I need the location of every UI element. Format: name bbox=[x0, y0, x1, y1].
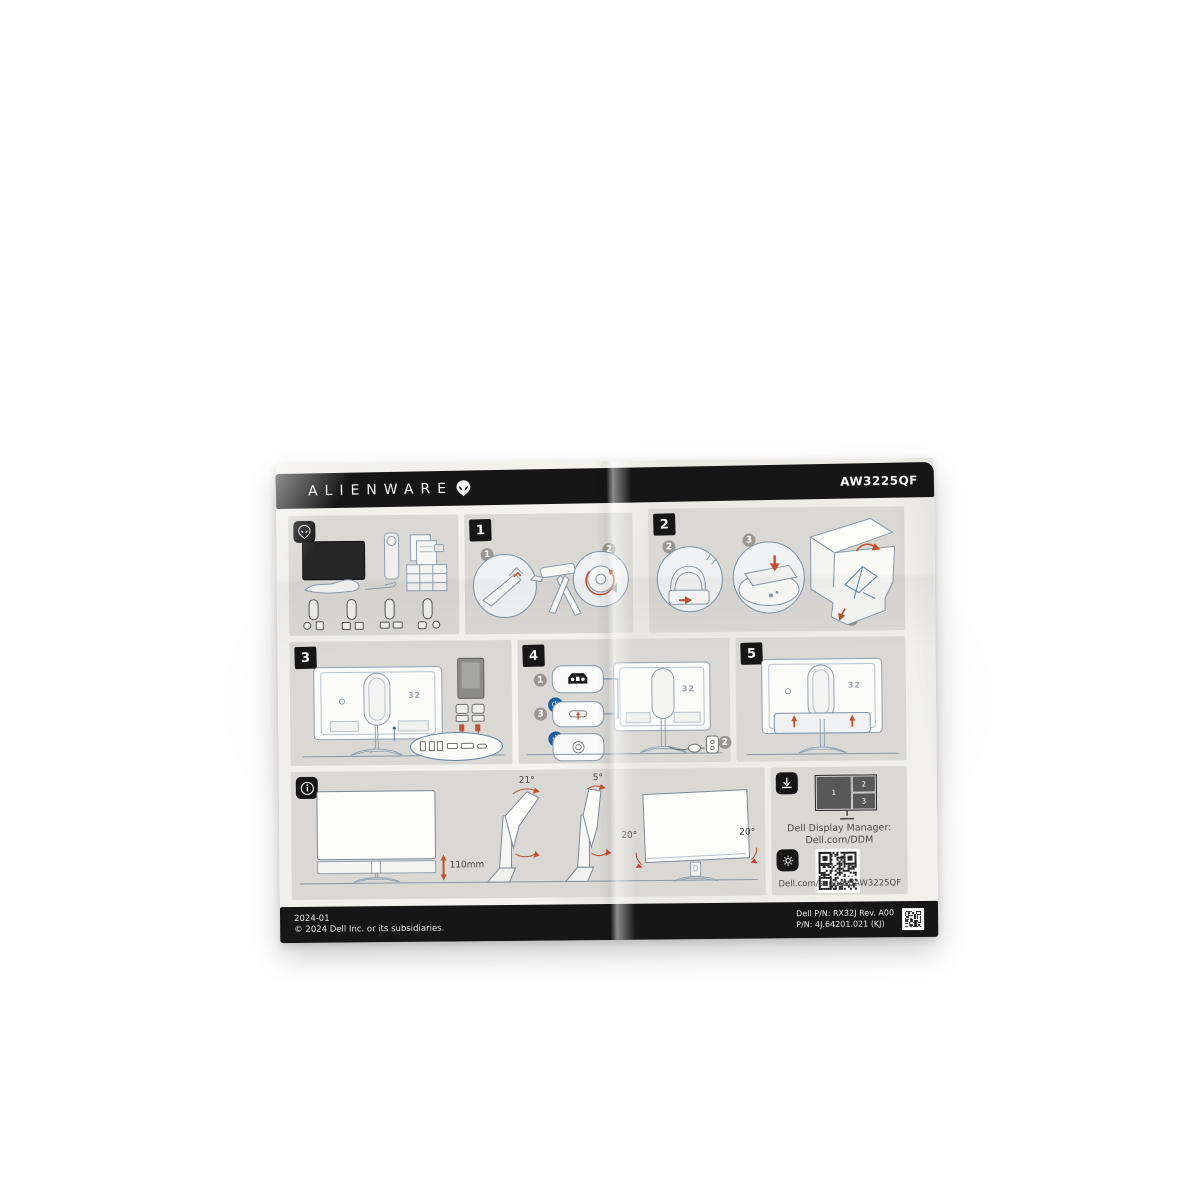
panel-box-contents bbox=[288, 514, 459, 636]
connect-cables-illustration bbox=[289, 640, 512, 766]
pbp-monitor-stand bbox=[837, 811, 857, 821]
download-icon bbox=[780, 776, 794, 790]
cable-cover-illustration bbox=[735, 636, 906, 762]
monitor-back-logo: 32 bbox=[682, 684, 695, 693]
box-contents-illustration bbox=[288, 514, 459, 636]
panel-step-2: 2 2 3 4 1 bbox=[648, 506, 905, 632]
ddm-label: Dell Display Manager: bbox=[771, 822, 907, 834]
header-bar: ALIENWARE AW3225QF bbox=[276, 462, 935, 509]
download-badge bbox=[776, 772, 798, 794]
brand-wordmark: ALIENWARE bbox=[308, 480, 453, 499]
gear-badge bbox=[776, 849, 798, 871]
support-link: Dell.com/support/AW3225QF bbox=[762, 878, 918, 889]
pbp-window-1: 1 bbox=[816, 776, 852, 810]
pbp-monitor-graphic: 1 2 3 bbox=[815, 774, 877, 811]
gear-icon bbox=[780, 853, 795, 868]
pbp-window-2: 2 bbox=[852, 775, 876, 792]
callout-2-badge: 2 bbox=[718, 736, 731, 749]
footer-bar: 2024-01 © 2024 Dell Inc. or its subsidia… bbox=[280, 901, 938, 943]
pbp-window-3: 3 bbox=[852, 792, 876, 809]
footer-left: 2024-01 © 2024 Dell Inc. or its subsidia… bbox=[294, 912, 444, 936]
panel-software: 1 2 3 Dell Display Manager: Dell.com/DDM… bbox=[771, 766, 908, 895]
panel-step-3: 3 bbox=[289, 640, 512, 766]
panel-step-5: 5 32 bbox=[735, 636, 906, 762]
monitor-back-logo: 32 bbox=[408, 691, 421, 700]
adjustment-illustrations bbox=[291, 767, 766, 900]
photo-background: ALIENWARE AW3225QF bbox=[0, 0, 1200, 1200]
tilt-back-label: 21° bbox=[519, 776, 535, 786]
panel-step-4: 4 1 ⏻ 3 ✛ bbox=[517, 638, 730, 764]
model-number: AW3225QF bbox=[840, 473, 918, 488]
swivel-left-label: 20° bbox=[621, 831, 637, 841]
footer-copyright: © 2024 Dell Inc. or its subsidiaries. bbox=[294, 924, 444, 937]
monitor-back-logo: 32 bbox=[848, 681, 861, 690]
panel-step-1: 1 1 2 bbox=[464, 513, 633, 635]
footer-part-numbers: Dell P/N: RX32J Rev. A00 P/N: 4J.64201.0… bbox=[796, 908, 894, 931]
ddm-link: Dell.com/DDM bbox=[771, 834, 907, 846]
alien-head-icon bbox=[455, 479, 472, 496]
panel-adjustments: 110mm 21° 5° 20° 20° bbox=[291, 767, 766, 900]
stand-assembly-illustration bbox=[464, 513, 633, 635]
power-connect-illustration bbox=[517, 638, 730, 764]
mount-in-box-illustration bbox=[648, 506, 905, 632]
datamatrix-code bbox=[902, 908, 924, 930]
tilt-forward-label: 5° bbox=[593, 773, 603, 783]
footer-pn-line2: P/N: 4J.64201.021 (KJ) bbox=[796, 919, 894, 931]
swivel-right-label: 20° bbox=[739, 828, 755, 838]
height-range-label: 110mm bbox=[450, 860, 485, 870]
setup-guide-sheet: ALIENWARE AW3225QF bbox=[276, 458, 939, 943]
